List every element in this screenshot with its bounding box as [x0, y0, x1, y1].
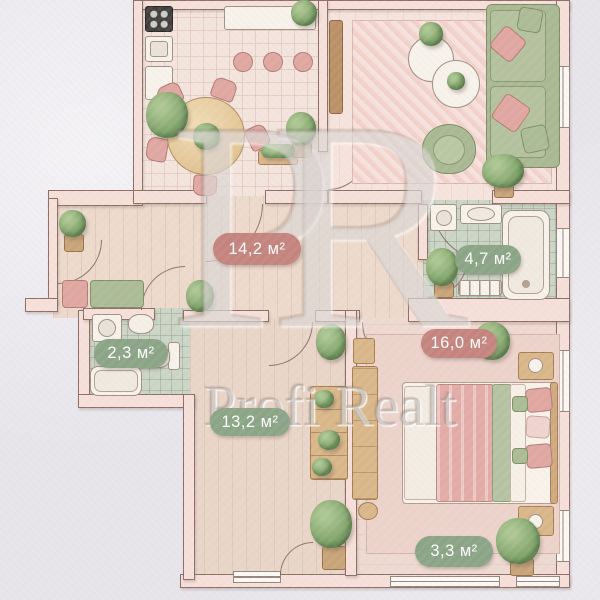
plant — [286, 112, 316, 146]
plant — [59, 210, 86, 237]
planter-greenery — [261, 144, 295, 158]
stove — [145, 6, 173, 32]
area-label-hall: 14,2 м² — [213, 233, 301, 265]
plant — [426, 248, 458, 286]
plant — [291, 0, 317, 26]
window — [556, 228, 570, 278]
wall — [25, 298, 58, 312]
sofa-pillow-green — [520, 124, 551, 155]
towel-radiator — [458, 280, 502, 296]
dining-chair — [145, 136, 170, 163]
area-label-bedroom: 16,0 м² — [421, 329, 497, 358]
bed-duvet — [404, 386, 438, 500]
wall — [183, 394, 195, 580]
plant-pot — [322, 546, 346, 570]
plant — [482, 154, 524, 188]
wall — [78, 310, 90, 402]
wall — [328, 190, 422, 204]
table-lamp — [528, 358, 543, 373]
wall — [318, 0, 328, 152]
bathroom-sink — [467, 207, 495, 221]
bar-stool — [233, 52, 253, 72]
area-label-corridor: 13,2 м² — [210, 408, 290, 436]
plant — [146, 92, 188, 138]
wall — [265, 190, 328, 204]
washing-machine-drum — [436, 210, 452, 226]
plant — [310, 500, 352, 548]
stool — [358, 502, 378, 520]
tv-cabinet — [329, 20, 343, 114]
wall — [78, 394, 195, 408]
bathtub-drain — [522, 280, 530, 288]
wall — [408, 298, 570, 322]
table-centerpiece-plant — [193, 123, 220, 150]
bathtub-basin — [94, 370, 138, 392]
bed-pillow — [525, 387, 553, 414]
shelf-plant — [312, 458, 332, 476]
wall — [48, 190, 143, 206]
plant — [316, 324, 346, 360]
kitchen-sink-basin — [150, 41, 168, 57]
coffee-table-plant — [419, 22, 443, 46]
dining-chair — [192, 174, 217, 197]
sofa-pillow-green — [516, 6, 544, 34]
bench — [90, 280, 144, 308]
bar-stool — [263, 52, 283, 72]
washing-machine-drum — [98, 319, 116, 337]
door-threshold — [233, 571, 281, 583]
bed-pillow-green — [512, 396, 528, 412]
wc-sink — [128, 314, 154, 334]
floor-plan: PR Profi Realt 14,2 м² 4,7 м² 2,3 м² 16,… — [0, 0, 600, 600]
bed-blanket-pink — [436, 384, 494, 502]
wall-shelf — [353, 338, 375, 364]
wall — [183, 310, 269, 322]
area-label-wc: 2,3 м² — [94, 339, 168, 368]
coffee-table-plant — [447, 72, 465, 90]
wall — [133, 0, 143, 200]
area-label-bathroom: 4,7 м² — [455, 245, 521, 274]
wall — [48, 198, 58, 304]
shelf-plant — [318, 430, 340, 450]
bed-pillow-green — [512, 448, 528, 464]
area-label-balcony: 3,3 м² — [415, 536, 493, 567]
console-desk — [352, 366, 378, 500]
bed-blanket-green — [492, 384, 512, 502]
bench-pillow — [62, 280, 88, 308]
bed-pillow — [525, 415, 550, 439]
window — [390, 576, 500, 587]
shelf-plant — [314, 390, 334, 408]
armchair-seat — [433, 135, 465, 165]
wall — [418, 204, 428, 260]
window — [516, 576, 560, 587]
bed-pillow — [525, 443, 553, 469]
plant — [186, 280, 214, 312]
bar-stool — [293, 52, 313, 72]
plant — [496, 518, 540, 564]
